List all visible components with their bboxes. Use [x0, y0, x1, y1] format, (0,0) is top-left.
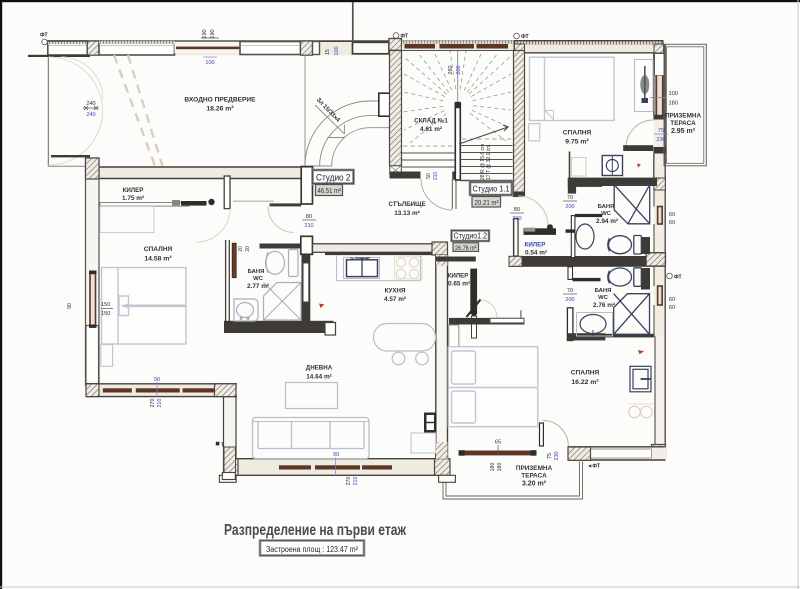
svg-text:210: 210 — [157, 399, 163, 408]
svg-text:WC: WC — [253, 276, 264, 282]
svg-text:4.61 m²: 4.61 m² — [420, 126, 442, 133]
svg-text:Т: Т — [221, 443, 224, 449]
svg-text:Разпределение на първи етаж: Разпределение на първи етаж — [224, 522, 406, 539]
svg-text:100: 100 — [334, 46, 340, 55]
svg-text:ВХОДНО ПРЕДВЕРИЕ: ВХОДНО ПРЕДВЕРИЕ — [184, 97, 256, 104]
svg-text:КИЛЕР: КИЛЕР — [123, 187, 144, 194]
svg-text:17 T @ 32.0 cm: 17 T @ 32.0 cm — [486, 145, 492, 180]
svg-text:13.13 m²: 13.13 m² — [394, 210, 420, 217]
svg-text:СПАЛНЯ: СПАЛНЯ — [144, 246, 173, 253]
svg-text:КУХНЯ: КУХНЯ — [385, 288, 406, 295]
svg-text:2.77 m²: 2.77 m² — [247, 283, 269, 290]
svg-text:210: 210 — [353, 477, 359, 486]
svg-text:60: 60 — [669, 305, 675, 311]
svg-text:65: 65 — [495, 440, 501, 446]
svg-text:2.76 m²: 2.76 m² — [593, 302, 615, 309]
svg-text:БАНЯ: БАНЯ — [248, 269, 265, 275]
svg-text:70: 70 — [567, 288, 573, 294]
svg-text:240: 240 — [86, 112, 95, 118]
svg-text:80: 80 — [514, 207, 520, 213]
svg-text:СПАЛНЯ: СПАЛНЯ — [571, 370, 600, 377]
svg-text:СПАЛНЯ: СПАЛНЯ — [563, 130, 592, 137]
svg-text:200: 200 — [565, 297, 574, 303]
svg-text:ФТ: ФТ — [401, 34, 409, 40]
svg-text:20: 20 — [238, 246, 244, 252]
svg-text:1.75 m²: 1.75 m² — [122, 195, 144, 202]
svg-text:БАНЯ: БАНЯ — [598, 204, 615, 210]
svg-text:100: 100 — [669, 91, 678, 97]
svg-text:60: 60 — [669, 297, 675, 303]
svg-text:180: 180 — [490, 463, 496, 472]
svg-text:190: 190 — [202, 29, 208, 38]
svg-text:180: 180 — [497, 463, 503, 472]
svg-text:WC: WC — [598, 295, 609, 301]
svg-text:90: 90 — [67, 303, 73, 309]
svg-text:90: 90 — [333, 452, 339, 458]
svg-text:КИЛЕР: КИЛЕР — [525, 242, 546, 249]
svg-text:БАНЯ: БАНЯ — [595, 288, 612, 294]
svg-text:4.57 m²: 4.57 m² — [384, 296, 406, 303]
svg-text:ПРИЗЕМНА: ПРИЗЕМНА — [665, 113, 702, 120]
svg-text:270: 270 — [346, 477, 352, 486]
svg-text:16.22 m²: 16.22 m² — [571, 379, 599, 386]
svg-text:КИЛЕР: КИЛЕР — [448, 273, 469, 280]
svg-text:200: 200 — [565, 204, 574, 210]
svg-text:Студио 2: Студио 2 — [316, 173, 351, 183]
svg-text:20.21 m²: 20.21 m² — [475, 198, 499, 207]
svg-text:14.58 m²: 14.58 m² — [144, 256, 172, 263]
svg-text:◄ФТ: ◄ФТ — [587, 464, 601, 470]
svg-text:270: 270 — [150, 399, 156, 408]
svg-text:WC: WC — [601, 211, 612, 217]
svg-text:2.95 m²: 2.95 m² — [671, 128, 696, 135]
svg-text:46.51 m²: 46.51 m² — [318, 186, 342, 195]
svg-text:15: 15 — [325, 49, 331, 55]
svg-text:ФТ: ФТ — [40, 33, 48, 39]
svg-text:260: 260 — [448, 65, 454, 74]
svg-text:200: 200 — [456, 65, 462, 74]
svg-text:0.54 m²: 0.54 m² — [525, 250, 547, 257]
svg-text:0.65 m²: 0.65 m² — [448, 281, 470, 288]
svg-text:2.94 m²: 2.94 m² — [596, 218, 618, 225]
svg-text:210: 210 — [512, 216, 521, 222]
svg-text:100: 100 — [205, 60, 214, 66]
svg-text:80: 80 — [306, 214, 312, 220]
svg-text:75: 75 — [547, 453, 553, 459]
svg-text:ФТ: ФТ — [521, 34, 529, 40]
svg-text:ТЕРАСА: ТЕРАСА — [521, 472, 547, 479]
svg-text:150: 150 — [101, 311, 110, 317]
svg-text:ДНЕВНА: ДНЕВНА — [306, 365, 333, 372]
svg-text:Студио1.2: Студио1.2 — [454, 231, 488, 241]
svg-text:60: 60 — [669, 220, 675, 226]
svg-text:14.64 m²: 14.64 m² — [306, 374, 332, 381]
svg-text:ПРИЗЕМНА: ПРИЗЕМНА — [516, 465, 553, 472]
svg-text:150: 150 — [101, 302, 110, 308]
svg-text:210: 210 — [304, 223, 313, 229]
svg-text:20: 20 — [245, 246, 251, 252]
svg-text:70: 70 — [567, 195, 573, 201]
svg-text:Застроена площ : 123.47 m²: Застроена площ : 123.47 m² — [266, 545, 358, 554]
svg-text:Студио 1.1: Студио 1.1 — [473, 184, 510, 194]
svg-text:190: 190 — [210, 29, 216, 38]
svg-text:75: 75 — [658, 128, 664, 134]
svg-text:СКЛАД №1: СКЛАД №1 — [414, 118, 448, 125]
svg-text:50: 50 — [426, 173, 432, 179]
svg-text:26.76 m²: 26.76 m² — [455, 245, 477, 252]
svg-text:60: 60 — [669, 212, 675, 218]
svg-text:210: 210 — [433, 172, 439, 181]
svg-text:230: 230 — [656, 137, 665, 143]
svg-text:СТЪЛБИЩЕ: СТЪЛБИЩЕ — [388, 201, 425, 208]
svg-text:ТЕРАСА: ТЕРАСА — [670, 120, 696, 127]
svg-text:18.26 m²: 18.26 m² — [206, 106, 234, 113]
svg-text:3.20 m²: 3.20 m² — [522, 481, 547, 488]
svg-text:ФТ: ФТ — [674, 275, 682, 281]
svg-text:9.75 m²: 9.75 m² — [565, 139, 589, 146]
svg-text:230: 230 — [554, 451, 560, 460]
svg-text:180: 180 — [669, 101, 678, 107]
